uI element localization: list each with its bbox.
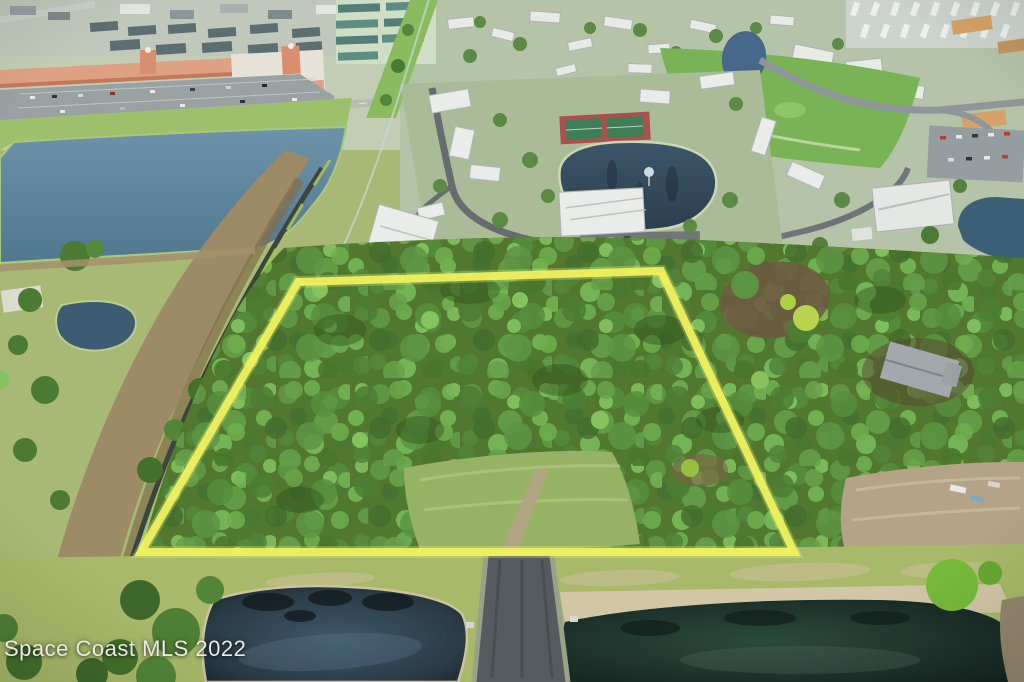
watermark: Space Coast MLS 2022: [4, 636, 246, 662]
aerial-scene: [0, 0, 1024, 682]
vignette: [0, 0, 1024, 682]
aerial-photo: Space Coast MLS 2022: [0, 0, 1024, 682]
